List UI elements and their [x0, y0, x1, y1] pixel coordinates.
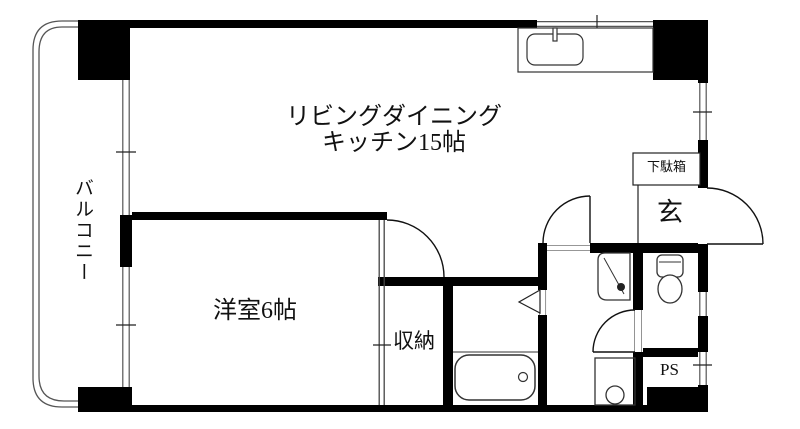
shoe-cabinet-label: 下駄箱	[633, 160, 700, 174]
kitchen-faucet	[553, 28, 557, 41]
bathroom	[453, 352, 538, 400]
wall-closet-top	[378, 277, 547, 286]
washing-machine-drain	[606, 386, 624, 404]
balcony-window-upper	[116, 80, 136, 215]
ldk-label-line1: リビングダイニング	[278, 104, 510, 130]
floor-plan: リビングダイニング キッチン15帖 洋室6帖 収納 バルコニー 下駄箱 玄 PS	[0, 0, 800, 429]
wall-western-room-top	[120, 212, 387, 220]
entrance-label: 玄	[640, 199, 700, 228]
wall-toilet-bottom	[643, 348, 698, 357]
toilet-fixture	[657, 255, 683, 303]
walls	[78, 20, 708, 412]
pillar-top-right	[653, 20, 708, 80]
closet-label: 収納	[384, 330, 444, 353]
washing-machine-pan	[595, 358, 635, 405]
western-room-label: 洋室6帖	[155, 298, 355, 324]
ldk-side-window	[693, 83, 712, 140]
toilet-bowl	[658, 275, 682, 303]
toilet-door	[593, 310, 635, 352]
washbasin-drain	[617, 283, 625, 291]
washroom-fixtures	[595, 253, 635, 405]
ldk-room-label: リビングダイニング キッチン15帖	[278, 104, 510, 156]
wall-top	[130, 20, 537, 28]
toilet-window	[698, 292, 708, 316]
pillar-bottom-left	[78, 387, 128, 412]
washroom-door	[543, 196, 590, 243]
bathroom-folding-door-icon	[519, 290, 540, 313]
kitchen-counter	[518, 28, 653, 72]
toilet-door-opening	[633, 310, 643, 352]
partition-western-room-right	[373, 220, 391, 405]
ldk-label-line2: キッチン15帖	[278, 130, 510, 156]
balcony-window-lower	[116, 267, 136, 387]
entrance-door	[707, 188, 763, 244]
bathtub	[455, 355, 535, 400]
pillar-top-left	[78, 20, 130, 80]
balcony-label: バルコニー	[64, 175, 92, 285]
washroom-door-opening	[547, 243, 590, 253]
pipe-space-label: PS	[641, 361, 698, 380]
pipe-space-fill	[647, 387, 698, 405]
wall-washroom-left	[538, 243, 547, 405]
toilet-tank	[657, 255, 683, 277]
ldk-door-arc	[387, 220, 444, 277]
bathtub-drain	[519, 373, 528, 382]
wall-bottom	[128, 405, 708, 412]
wall-bathroom-left	[443, 286, 453, 405]
